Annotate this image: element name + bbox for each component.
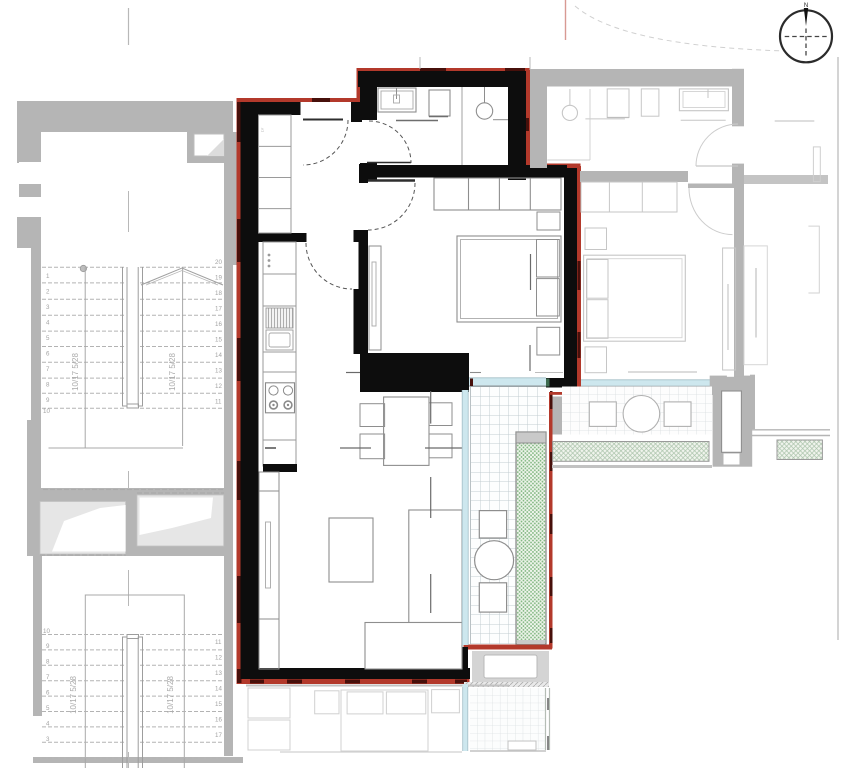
svg-text:7: 7 [46, 366, 50, 373]
svg-text:19: 19 [215, 275, 222, 282]
svg-text:15: 15 [215, 701, 222, 708]
svg-text:7: 7 [46, 674, 50, 681]
svg-text:8: 8 [46, 659, 50, 666]
svg-text:10: 10 [43, 408, 50, 415]
svg-text:16: 16 [215, 321, 222, 328]
svg-text:3: 3 [46, 736, 50, 743]
svg-text:2: 2 [46, 289, 50, 296]
svg-text:LV: LV [260, 127, 265, 132]
svg-text:N: N [804, 3, 808, 9]
svg-text:10/17 5/28: 10/17 5/28 [166, 676, 175, 714]
svg-text:4: 4 [46, 320, 50, 327]
svg-text:10/17 5/28: 10/17 5/28 [71, 353, 80, 391]
svg-text:1: 1 [46, 273, 50, 280]
svg-text:17: 17 [215, 732, 222, 739]
svg-text:8: 8 [46, 382, 50, 389]
svg-text:20: 20 [215, 259, 222, 266]
svg-text:18: 18 [215, 290, 222, 297]
svg-text:10/17 5/28: 10/17 5/28 [69, 676, 78, 714]
svg-text:15: 15 [215, 337, 222, 344]
svg-text:5: 5 [46, 335, 50, 342]
svg-text:14: 14 [215, 686, 222, 693]
svg-text:14: 14 [215, 352, 222, 359]
svg-text:6: 6 [46, 690, 50, 697]
svg-text:13: 13 [215, 368, 222, 375]
svg-text:13: 13 [215, 670, 222, 677]
svg-text:10: 10 [43, 628, 50, 635]
svg-text:17: 17 [215, 306, 222, 313]
svg-text:11: 11 [215, 639, 222, 646]
svg-text:12: 12 [215, 383, 222, 390]
svg-text:11: 11 [215, 399, 222, 406]
svg-text:4: 4 [46, 721, 50, 728]
svg-text:5: 5 [46, 705, 50, 712]
svg-text:16: 16 [215, 717, 222, 724]
svg-text:10/17 5/28: 10/17 5/28 [168, 353, 177, 391]
svg-text:9: 9 [46, 643, 50, 650]
svg-text:3: 3 [46, 304, 50, 311]
svg-text:6: 6 [46, 351, 50, 358]
svg-text:9: 9 [46, 397, 50, 404]
svg-text:12: 12 [215, 655, 222, 662]
